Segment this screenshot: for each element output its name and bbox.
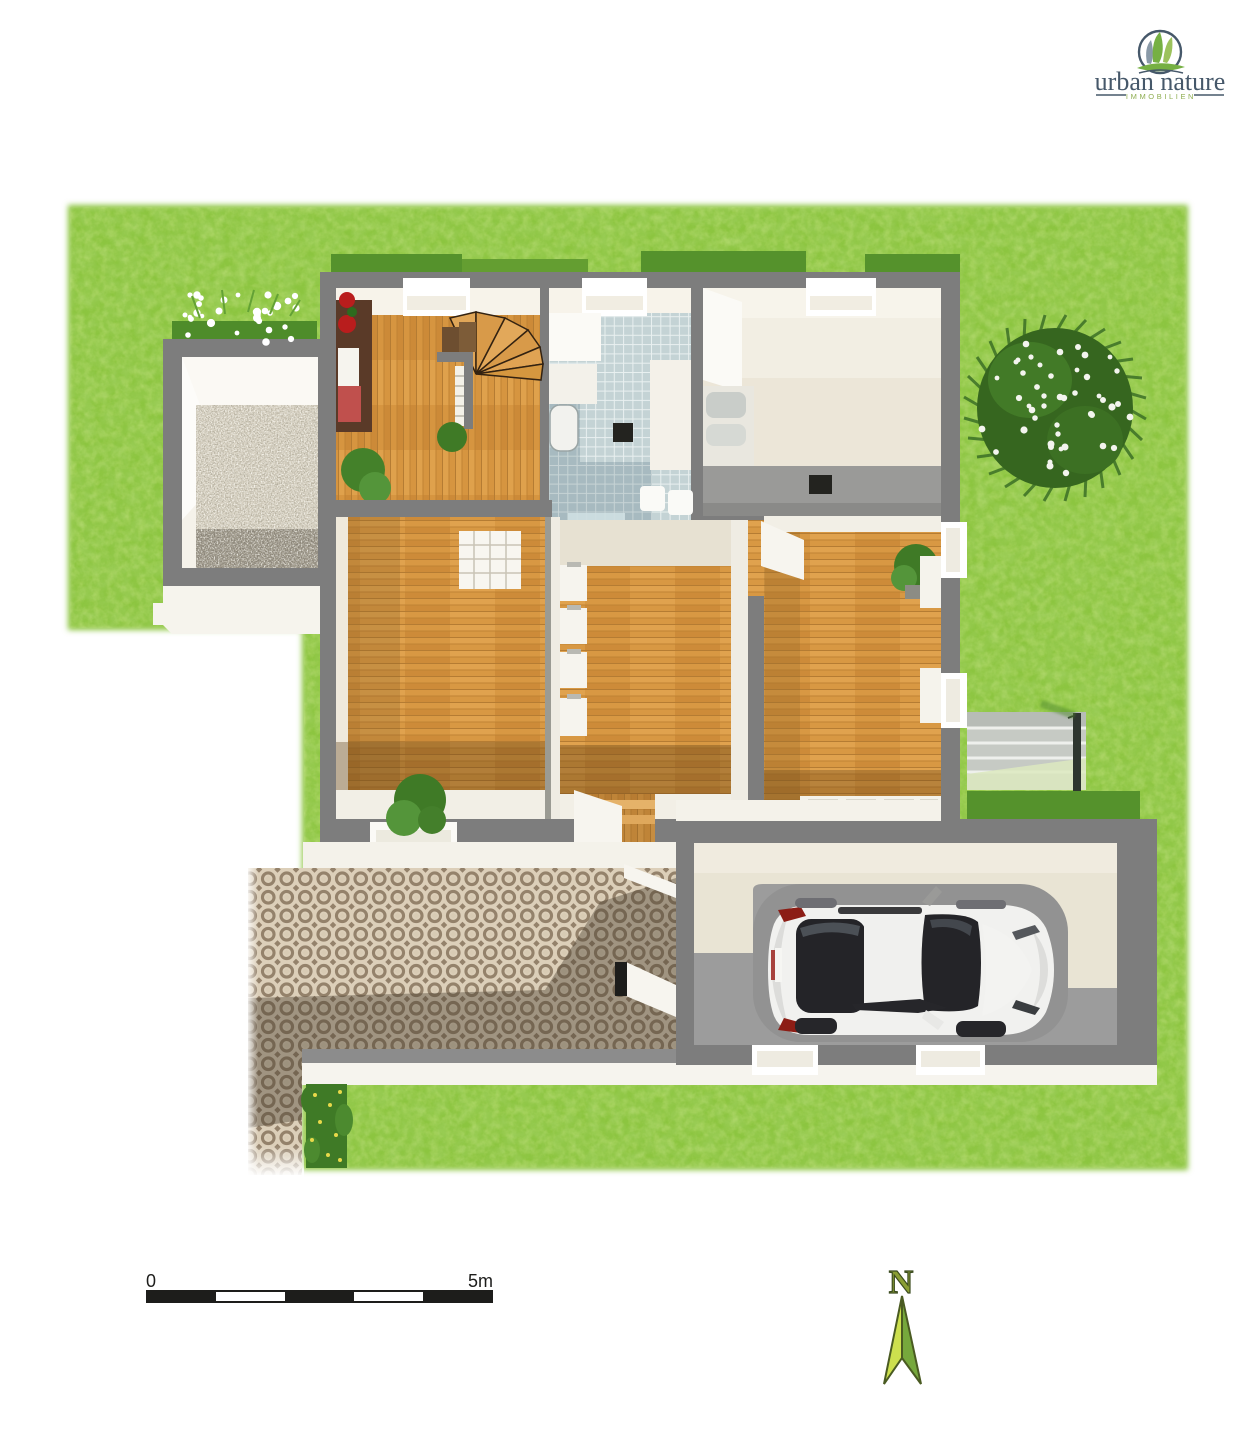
svg-text:5m: 5m bbox=[468, 1271, 493, 1291]
svg-text:N: N bbox=[889, 1264, 914, 1301]
svg-text:0: 0 bbox=[146, 1271, 156, 1291]
svg-text:IMMOBILIEN: IMMOBILIEN bbox=[1126, 92, 1196, 101]
